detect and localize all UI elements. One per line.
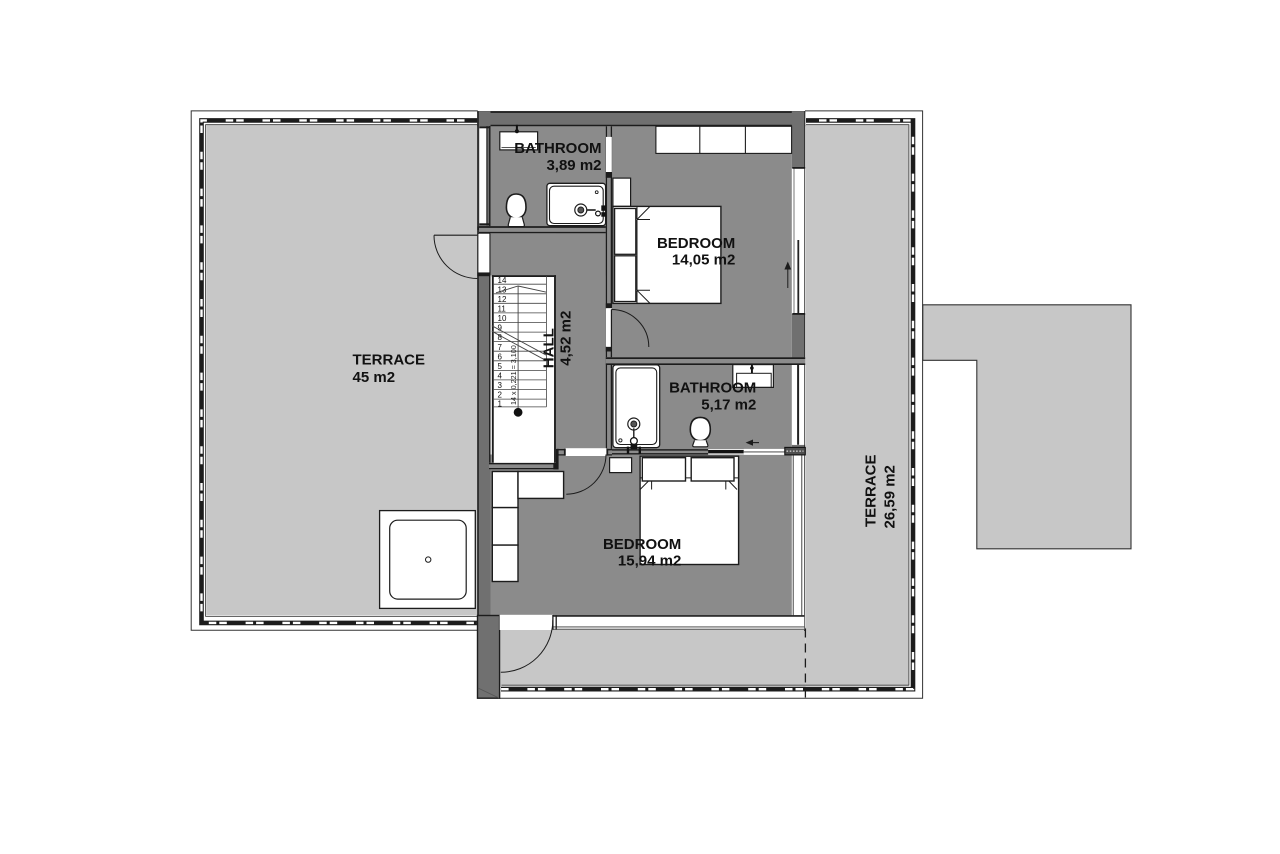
svg-text:4,52 m2: 4,52 m2 <box>558 311 575 366</box>
svg-text:BATHROOM: BATHROOM <box>514 140 601 157</box>
svg-text:BEDROOM: BEDROOM <box>657 235 735 252</box>
svg-text:9: 9 <box>498 324 503 333</box>
svg-text:BATHROOM: BATHROOM <box>669 380 756 397</box>
svg-text:45 m2: 45 m2 <box>353 369 396 386</box>
svg-text:5: 5 <box>498 362 503 371</box>
svg-text:26,59 m2: 26,59 m2 <box>882 465 899 528</box>
svg-text:14,05 m2: 14,05 m2 <box>672 252 735 269</box>
svg-text:7: 7 <box>498 343 503 352</box>
svg-text:TERRACE: TERRACE <box>353 351 426 368</box>
svg-text:11: 11 <box>498 305 507 314</box>
svg-text:3,89 m2: 3,89 m2 <box>546 157 601 174</box>
svg-text:6: 6 <box>498 352 503 361</box>
svg-text:14 x 0,221 = 3,100: 14 x 0,221 = 3,100 <box>509 345 518 405</box>
svg-text:BEDROOM: BEDROOM <box>603 536 681 553</box>
svg-text:14: 14 <box>498 276 507 285</box>
svg-text:8: 8 <box>498 333 503 342</box>
svg-text:3: 3 <box>498 381 503 390</box>
svg-text:HALL: HALL <box>541 328 558 368</box>
svg-text:1: 1 <box>498 399 503 408</box>
svg-text:10: 10 <box>498 314 507 323</box>
svg-text:5,17 m2: 5,17 m2 <box>701 396 756 413</box>
svg-text:12: 12 <box>498 295 507 304</box>
svg-text:13: 13 <box>498 285 507 294</box>
svg-text:15,94 m2: 15,94 m2 <box>618 553 681 570</box>
svg-text:4: 4 <box>498 372 503 381</box>
svg-text:TERRACE: TERRACE <box>862 454 879 527</box>
